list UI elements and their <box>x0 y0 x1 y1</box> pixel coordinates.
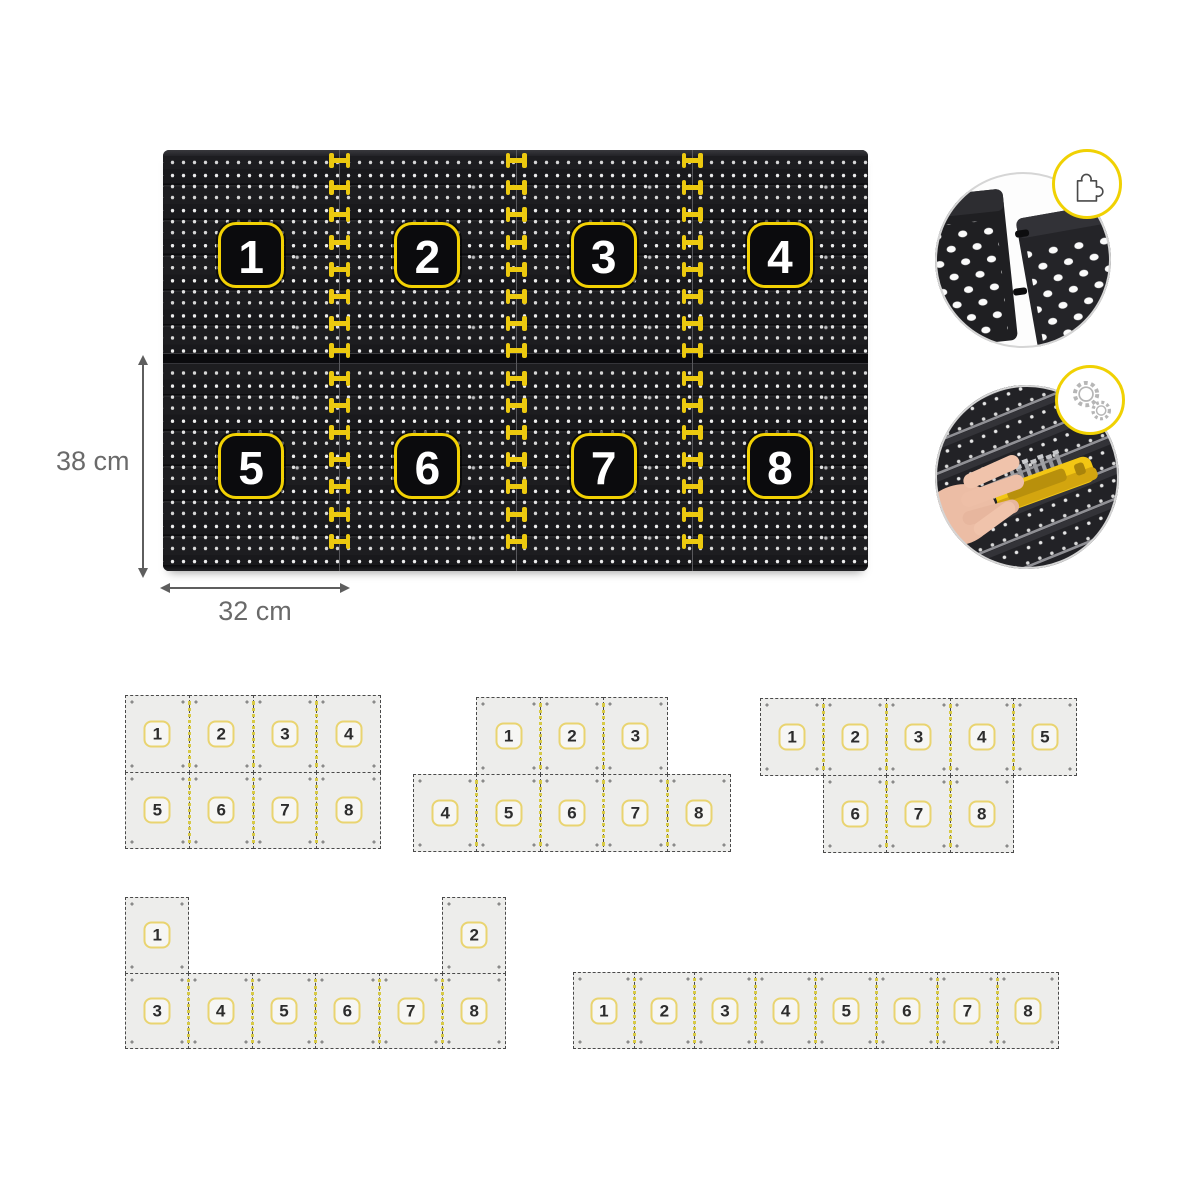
layout-tile: 8 <box>950 775 1014 853</box>
layout-tile: 3 <box>694 972 756 1049</box>
seam-connector-clip <box>330 457 349 462</box>
layout-tile: 2 <box>823 698 887 776</box>
seam-connector-clip <box>683 457 702 462</box>
tile-seam-connectors <box>666 780 669 846</box>
pegboard-assembly: 12345678 <box>163 150 868 571</box>
layout-tile: 6 <box>876 972 938 1049</box>
tile-number-badge: 2 <box>558 723 585 750</box>
seam-connector-clip <box>507 403 526 408</box>
layout-tile: 3 <box>886 698 950 776</box>
tile-seam-connectors <box>187 979 190 1044</box>
seam-connector-clip <box>507 240 526 245</box>
tile-number-badge: 2 <box>208 720 235 747</box>
tile-number-badge: 4 <box>335 720 362 747</box>
layout-tile: 6 <box>189 772 254 850</box>
tile-number-badge: 6 <box>842 801 869 828</box>
layout-tile: 8 <box>442 973 506 1050</box>
seam-connector-clip <box>330 430 349 435</box>
tile-seam-connectors <box>378 979 381 1044</box>
pegboard-panel: 8 <box>692 361 868 572</box>
tile-seam-connectors <box>441 979 444 1044</box>
layout-tile: 1 <box>125 695 190 773</box>
tile-number-badge: 7 <box>954 997 981 1024</box>
width-dimension-label: 32 cm <box>169 598 341 625</box>
seam-connector-clip <box>330 321 349 326</box>
tile-seam-connectors <box>539 780 542 846</box>
tile-seam-connectors <box>996 978 999 1043</box>
tile-number-badge: 4 <box>772 997 799 1024</box>
seam-connector-clip <box>507 512 526 517</box>
seam-connector-clip <box>683 512 702 517</box>
seam-connector-clip <box>507 484 526 489</box>
tile-number-badge: 6 <box>208 797 235 824</box>
seam-connector-clip <box>683 294 702 299</box>
tile-seam-connectors <box>875 978 878 1043</box>
tile-number-badge: 8 <box>461 997 488 1024</box>
gears-glyph <box>1067 377 1113 423</box>
tile-number-badge: 5 <box>144 797 171 824</box>
tile-number-badge: 3 <box>144 997 171 1024</box>
layout-tile: 2 <box>189 695 254 773</box>
panel-seam <box>692 150 693 571</box>
tile-number-badge: 4 <box>968 724 995 751</box>
tile-number-badge: 4 <box>432 800 459 827</box>
tile-number-badge: 5 <box>833 997 860 1024</box>
layout-tile: 2 <box>540 697 604 775</box>
tile-seam-connectors <box>633 978 636 1043</box>
panel-number-badge: 1 <box>218 222 284 288</box>
seam-connector-clip <box>330 539 349 544</box>
panel-number-badge: 3 <box>571 222 637 288</box>
height-dimension-arrow <box>142 364 144 569</box>
layout-tile: 4 <box>755 972 817 1049</box>
seam-connector-clip <box>683 321 702 326</box>
seam-connector-clip <box>507 457 526 462</box>
seam-connector-clip <box>507 158 526 163</box>
tile-seam-connectors <box>475 780 478 846</box>
seam-connector-clip <box>330 267 349 272</box>
tile-seam-connectors <box>814 978 817 1043</box>
seam-connector-clip <box>507 185 526 190</box>
seam-connector-clip <box>683 267 702 272</box>
pegboard-panel: 2 <box>339 150 515 361</box>
seam-connector-clip <box>330 484 349 489</box>
tile-number-badge: 8 <box>685 800 712 827</box>
gears-icon <box>1055 365 1125 435</box>
layout-tile: 4 <box>188 973 252 1050</box>
seam-connector-clip <box>683 430 702 435</box>
tile-number-badge: 1 <box>495 723 522 750</box>
layout-tile: 5 <box>476 774 540 852</box>
tile-number-badge: 3 <box>711 997 738 1024</box>
layout-tile: 5 <box>815 972 877 1049</box>
layout-tile: 8 <box>667 774 731 852</box>
seam-connector-clip <box>330 158 349 163</box>
panel-number-badge: 7 <box>571 433 637 499</box>
layout-tile: 6 <box>823 775 887 853</box>
seam-connector-clip <box>683 240 702 245</box>
panel-number-badge: 2 <box>394 222 460 288</box>
tile-seam-connectors <box>314 979 317 1044</box>
seam-connector-clip <box>507 212 526 217</box>
tile-number-badge: 5 <box>270 997 297 1024</box>
layout-tile: 5 <box>1013 698 1077 776</box>
layout-tile: 2 <box>442 897 506 974</box>
tile-number-badge: 8 <box>1014 997 1041 1024</box>
seam-connector-clip <box>507 539 526 544</box>
tile-seam-connectors <box>885 781 888 847</box>
tile-seam-connectors <box>936 978 939 1043</box>
pegboard-panel: 1 <box>163 150 339 361</box>
puzzle-icon <box>1052 149 1122 219</box>
panel-number-badge: 8 <box>747 433 813 499</box>
tile-seam-connectors <box>315 778 318 844</box>
pegboard-panel: 7 <box>516 361 692 572</box>
panel-number-badge: 5 <box>218 433 284 499</box>
tile-number-badge: 3 <box>905 724 932 751</box>
seam-connector-clip <box>683 403 702 408</box>
layout-tile: 1 <box>760 698 824 776</box>
pegboard-panel: 4 <box>692 150 868 361</box>
tile-seam-connectors <box>949 781 952 847</box>
seam-connector-clip <box>330 348 349 353</box>
tile-number-badge: 1 <box>590 997 617 1024</box>
tile-number-badge: 1 <box>144 720 171 747</box>
layout-tile: 5 <box>252 973 316 1050</box>
tile-number-badge: 3 <box>622 723 649 750</box>
seam-connector-clip <box>507 430 526 435</box>
tile-seam-connectors <box>885 704 888 770</box>
layout-tile: 7 <box>937 972 999 1049</box>
layout-tile: 7 <box>379 973 443 1050</box>
tile-number-badge: 2 <box>461 922 488 949</box>
tile-seam-connectors <box>539 703 542 769</box>
layout-tile: 7 <box>886 775 950 853</box>
layout-tile: 1 <box>573 972 635 1049</box>
tile-number-badge: 3 <box>271 720 298 747</box>
tile-number-badge: 7 <box>271 797 298 824</box>
tile-seam-connectors <box>188 701 191 767</box>
seam-connector-clip <box>507 376 526 381</box>
layout-tile: 3 <box>603 697 667 775</box>
tile-seam-connectors <box>602 703 605 769</box>
seam-connector-clip <box>683 185 702 190</box>
seam-connector-clip <box>330 185 349 190</box>
seam-connector-clip <box>330 512 349 517</box>
layout-tile: 3 <box>125 973 189 1050</box>
layout-tile: 7 <box>253 772 318 850</box>
pegboard-panel: 6 <box>339 361 515 572</box>
tile-number-badge: 1 <box>144 922 171 949</box>
seam-connector-clip <box>330 212 349 217</box>
seam-connector-clip <box>683 212 702 217</box>
tile-seam-connectors <box>754 978 757 1043</box>
pegboard-product-infographic: 12345678 38 cm 32 cm <box>0 0 1200 1200</box>
tile-seam-connectors <box>315 701 318 767</box>
tile-number-badge: 4 <box>207 997 234 1024</box>
seam-connector-clip <box>683 539 702 544</box>
layout-tile: 6 <box>315 973 379 1050</box>
seam-connector-clip <box>330 294 349 299</box>
layout-tile: 4 <box>413 774 477 852</box>
layout-tile: 1 <box>125 897 189 974</box>
tile-number-badge: 1 <box>779 724 806 751</box>
tile-number-badge: 2 <box>651 997 678 1024</box>
layout-tile: 8 <box>997 972 1059 1049</box>
tile-number-badge: 8 <box>968 801 995 828</box>
pegboard-panel: 3 <box>516 150 692 361</box>
tile-number-badge: 6 <box>334 997 361 1024</box>
seam-connector-clip <box>330 403 349 408</box>
seam-connector-clip <box>683 376 702 381</box>
panel-seam <box>516 150 517 571</box>
tile-seam-connectors <box>252 701 255 767</box>
tile-number-badge: 7 <box>622 800 649 827</box>
layout-tile: 6 <box>540 774 604 852</box>
tile-number-badge: 5 <box>1031 724 1058 751</box>
tile-number-badge: 8 <box>335 797 362 824</box>
seam-connector-clip <box>683 484 702 489</box>
panel-seam <box>339 150 340 571</box>
seam-connector-clip <box>507 321 526 326</box>
pegboard-panel: 5 <box>163 361 339 572</box>
tile-number-badge: 7 <box>905 801 932 828</box>
tile-number-badge: 6 <box>558 800 585 827</box>
tile-seam-connectors <box>252 778 255 844</box>
seam-connector-clip <box>330 376 349 381</box>
layout-tile: 3 <box>253 695 318 773</box>
height-dimension-label: 38 cm <box>56 448 140 475</box>
tile-number-badge: 5 <box>495 800 522 827</box>
panel-number-badge: 6 <box>394 433 460 499</box>
layout-tile: 5 <box>125 772 190 850</box>
tile-number-badge: 6 <box>893 997 920 1024</box>
tile-seam-connectors <box>602 780 605 846</box>
tile-seam-connectors <box>251 979 254 1044</box>
layout-tile: 4 <box>316 695 381 773</box>
seam-connector-clip <box>683 158 702 163</box>
tile-number-badge: 7 <box>397 997 424 1024</box>
layout-tile: 7 <box>603 774 667 852</box>
seam-connector-clip <box>330 240 349 245</box>
layout-tile: 4 <box>950 698 1014 776</box>
tile-seam-connectors <box>188 778 191 844</box>
seam-connector-clip <box>683 348 702 353</box>
layout-tile: 1 <box>476 697 540 775</box>
tile-seam-connectors <box>949 704 952 770</box>
width-dimension-arrow <box>169 587 341 589</box>
layout-tile: 2 <box>634 972 696 1049</box>
layout-tile: 8 <box>316 772 381 850</box>
tile-seam-connectors <box>693 978 696 1043</box>
seam-connector-clip <box>507 348 526 353</box>
seam-connector-clip <box>507 267 526 272</box>
panel-number-badge: 4 <box>747 222 813 288</box>
tile-seam-connectors <box>1012 704 1015 770</box>
seam-connector-clip <box>507 294 526 299</box>
tile-number-badge: 2 <box>842 724 869 751</box>
puzzle-piece-glyph <box>1065 162 1109 206</box>
tile-seam-connectors <box>822 704 825 770</box>
